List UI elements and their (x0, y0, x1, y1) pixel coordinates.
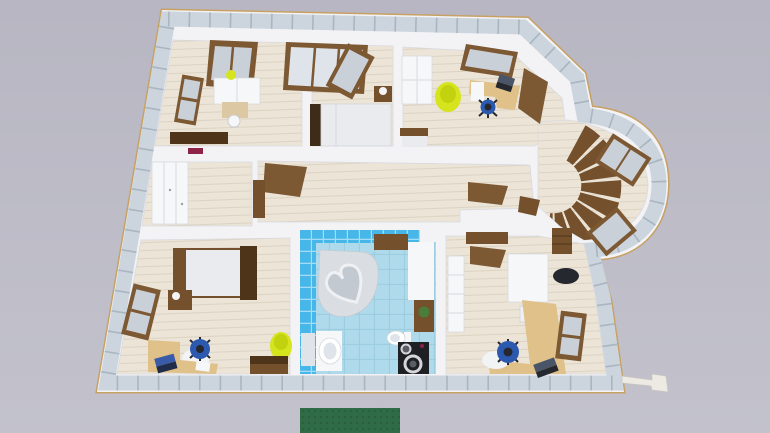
green-doormat (300, 408, 400, 433)
bl-bed-mattress (186, 250, 240, 296)
br-window-glass-2 (560, 337, 580, 356)
hall-door-leaf-3 (468, 182, 508, 205)
br-wardrobe-white (508, 254, 548, 302)
hall-door-leaf-2 (253, 180, 265, 218)
washer-drum-center (410, 361, 417, 368)
closet-wardrobe (152, 162, 188, 224)
stair-shelf-brown (552, 228, 572, 254)
wall-mirror (301, 333, 315, 366)
plant (419, 307, 430, 318)
study-drawer-unit (471, 82, 484, 101)
dark-sideboard (170, 132, 228, 144)
floor-plan-render (0, 0, 770, 433)
washbasin-bowl-inner (324, 343, 337, 360)
master-bed-headboard (310, 104, 321, 146)
study-chair-back (485, 104, 492, 111)
dark-bag (553, 268, 579, 284)
toilet-seat-inner (390, 334, 400, 342)
closet-handle-1 (169, 189, 171, 191)
closet-handle-2 (181, 203, 183, 205)
br-chair-back (504, 348, 513, 357)
left-window-glass-2 (178, 100, 197, 121)
bl-chair-back (196, 345, 204, 353)
washing-machine (398, 342, 429, 374)
magenta-wall-box (188, 148, 203, 154)
bathroom-partition (408, 242, 434, 300)
room-walk-in-closet (152, 162, 188, 224)
master-bed (321, 104, 391, 146)
study-bed (402, 136, 427, 146)
bl-nightstand-lamp (172, 292, 180, 300)
study-bean-bag-inner (440, 85, 456, 103)
bl-bean-bag-inner (274, 334, 288, 350)
white-chair (228, 115, 240, 127)
bl-bed-headboard (240, 246, 257, 300)
table-lamp (379, 87, 387, 95)
br-window-glass-1 (562, 316, 582, 336)
bathroom-brown-shelf (374, 234, 408, 250)
br-office-chair (497, 339, 519, 365)
washer-knob-magenta (420, 344, 424, 348)
bl-dresser-top (250, 356, 288, 364)
washer-dial (403, 346, 410, 353)
left-window-glass (181, 79, 200, 100)
floor-plan-canvas (0, 0, 770, 433)
bl-nightstand (168, 290, 192, 310)
study-bed-headboard (400, 128, 428, 136)
room-bathroom (300, 230, 436, 374)
hall-door-leaf-1 (263, 163, 307, 197)
br-wall-shelf-brown (466, 232, 508, 244)
yellow-vase (226, 70, 236, 80)
